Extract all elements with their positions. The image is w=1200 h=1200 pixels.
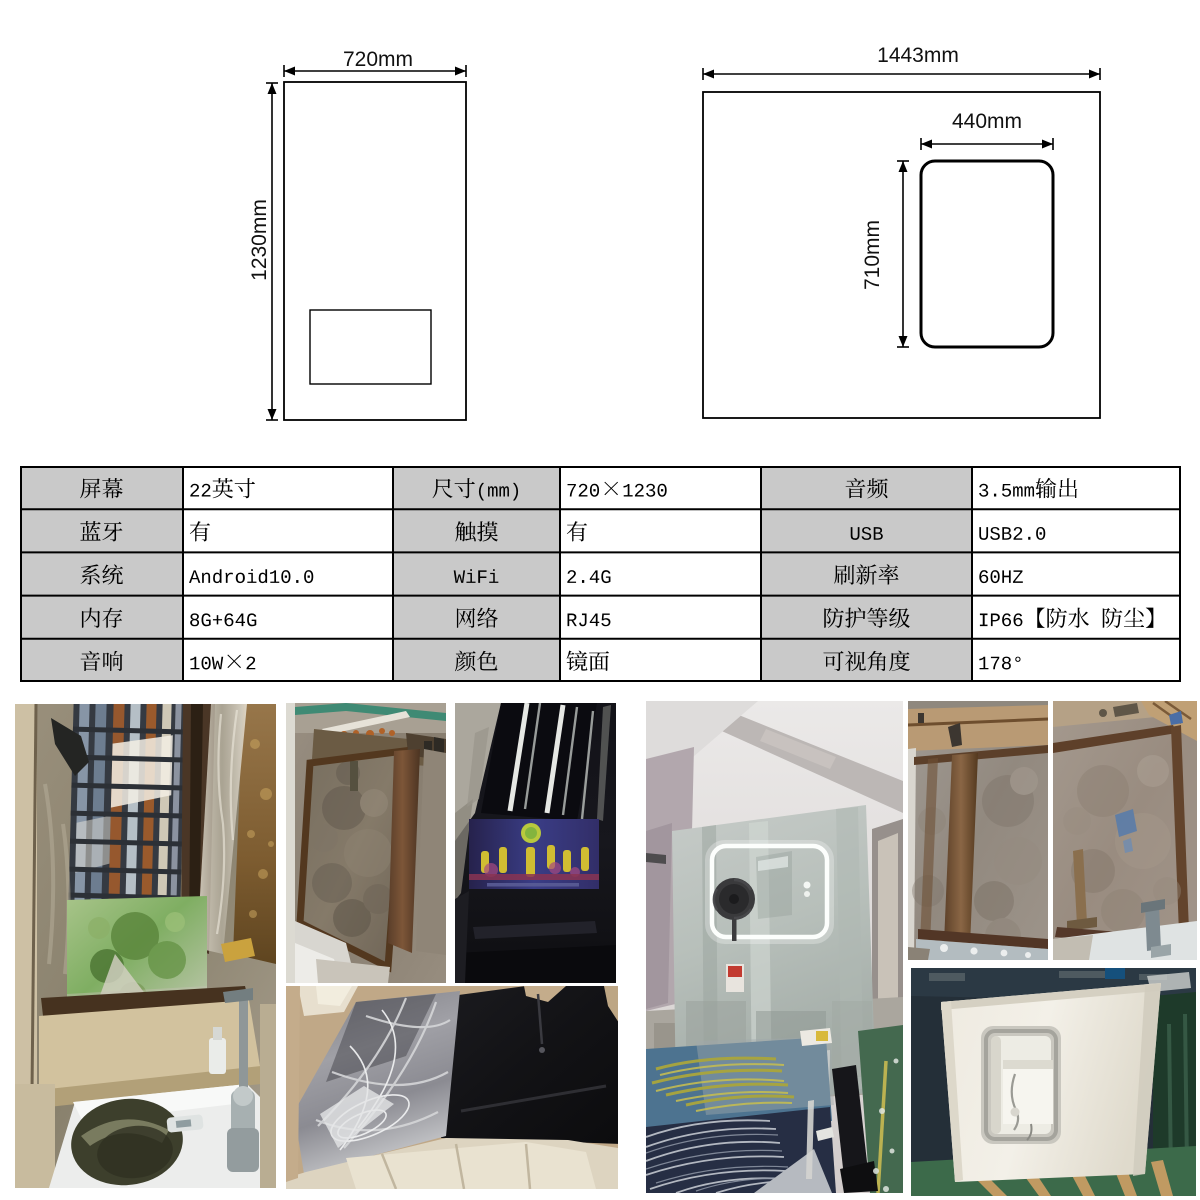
svg-text:440mm: 440mm [952,110,1022,133]
svg-text:1230mm: 1230mm [248,199,271,281]
svg-text:1443mm: 1443mm [877,44,959,67]
svg-text:720mm: 720mm [343,48,413,71]
svg-text:710mm: 710mm [861,220,884,290]
